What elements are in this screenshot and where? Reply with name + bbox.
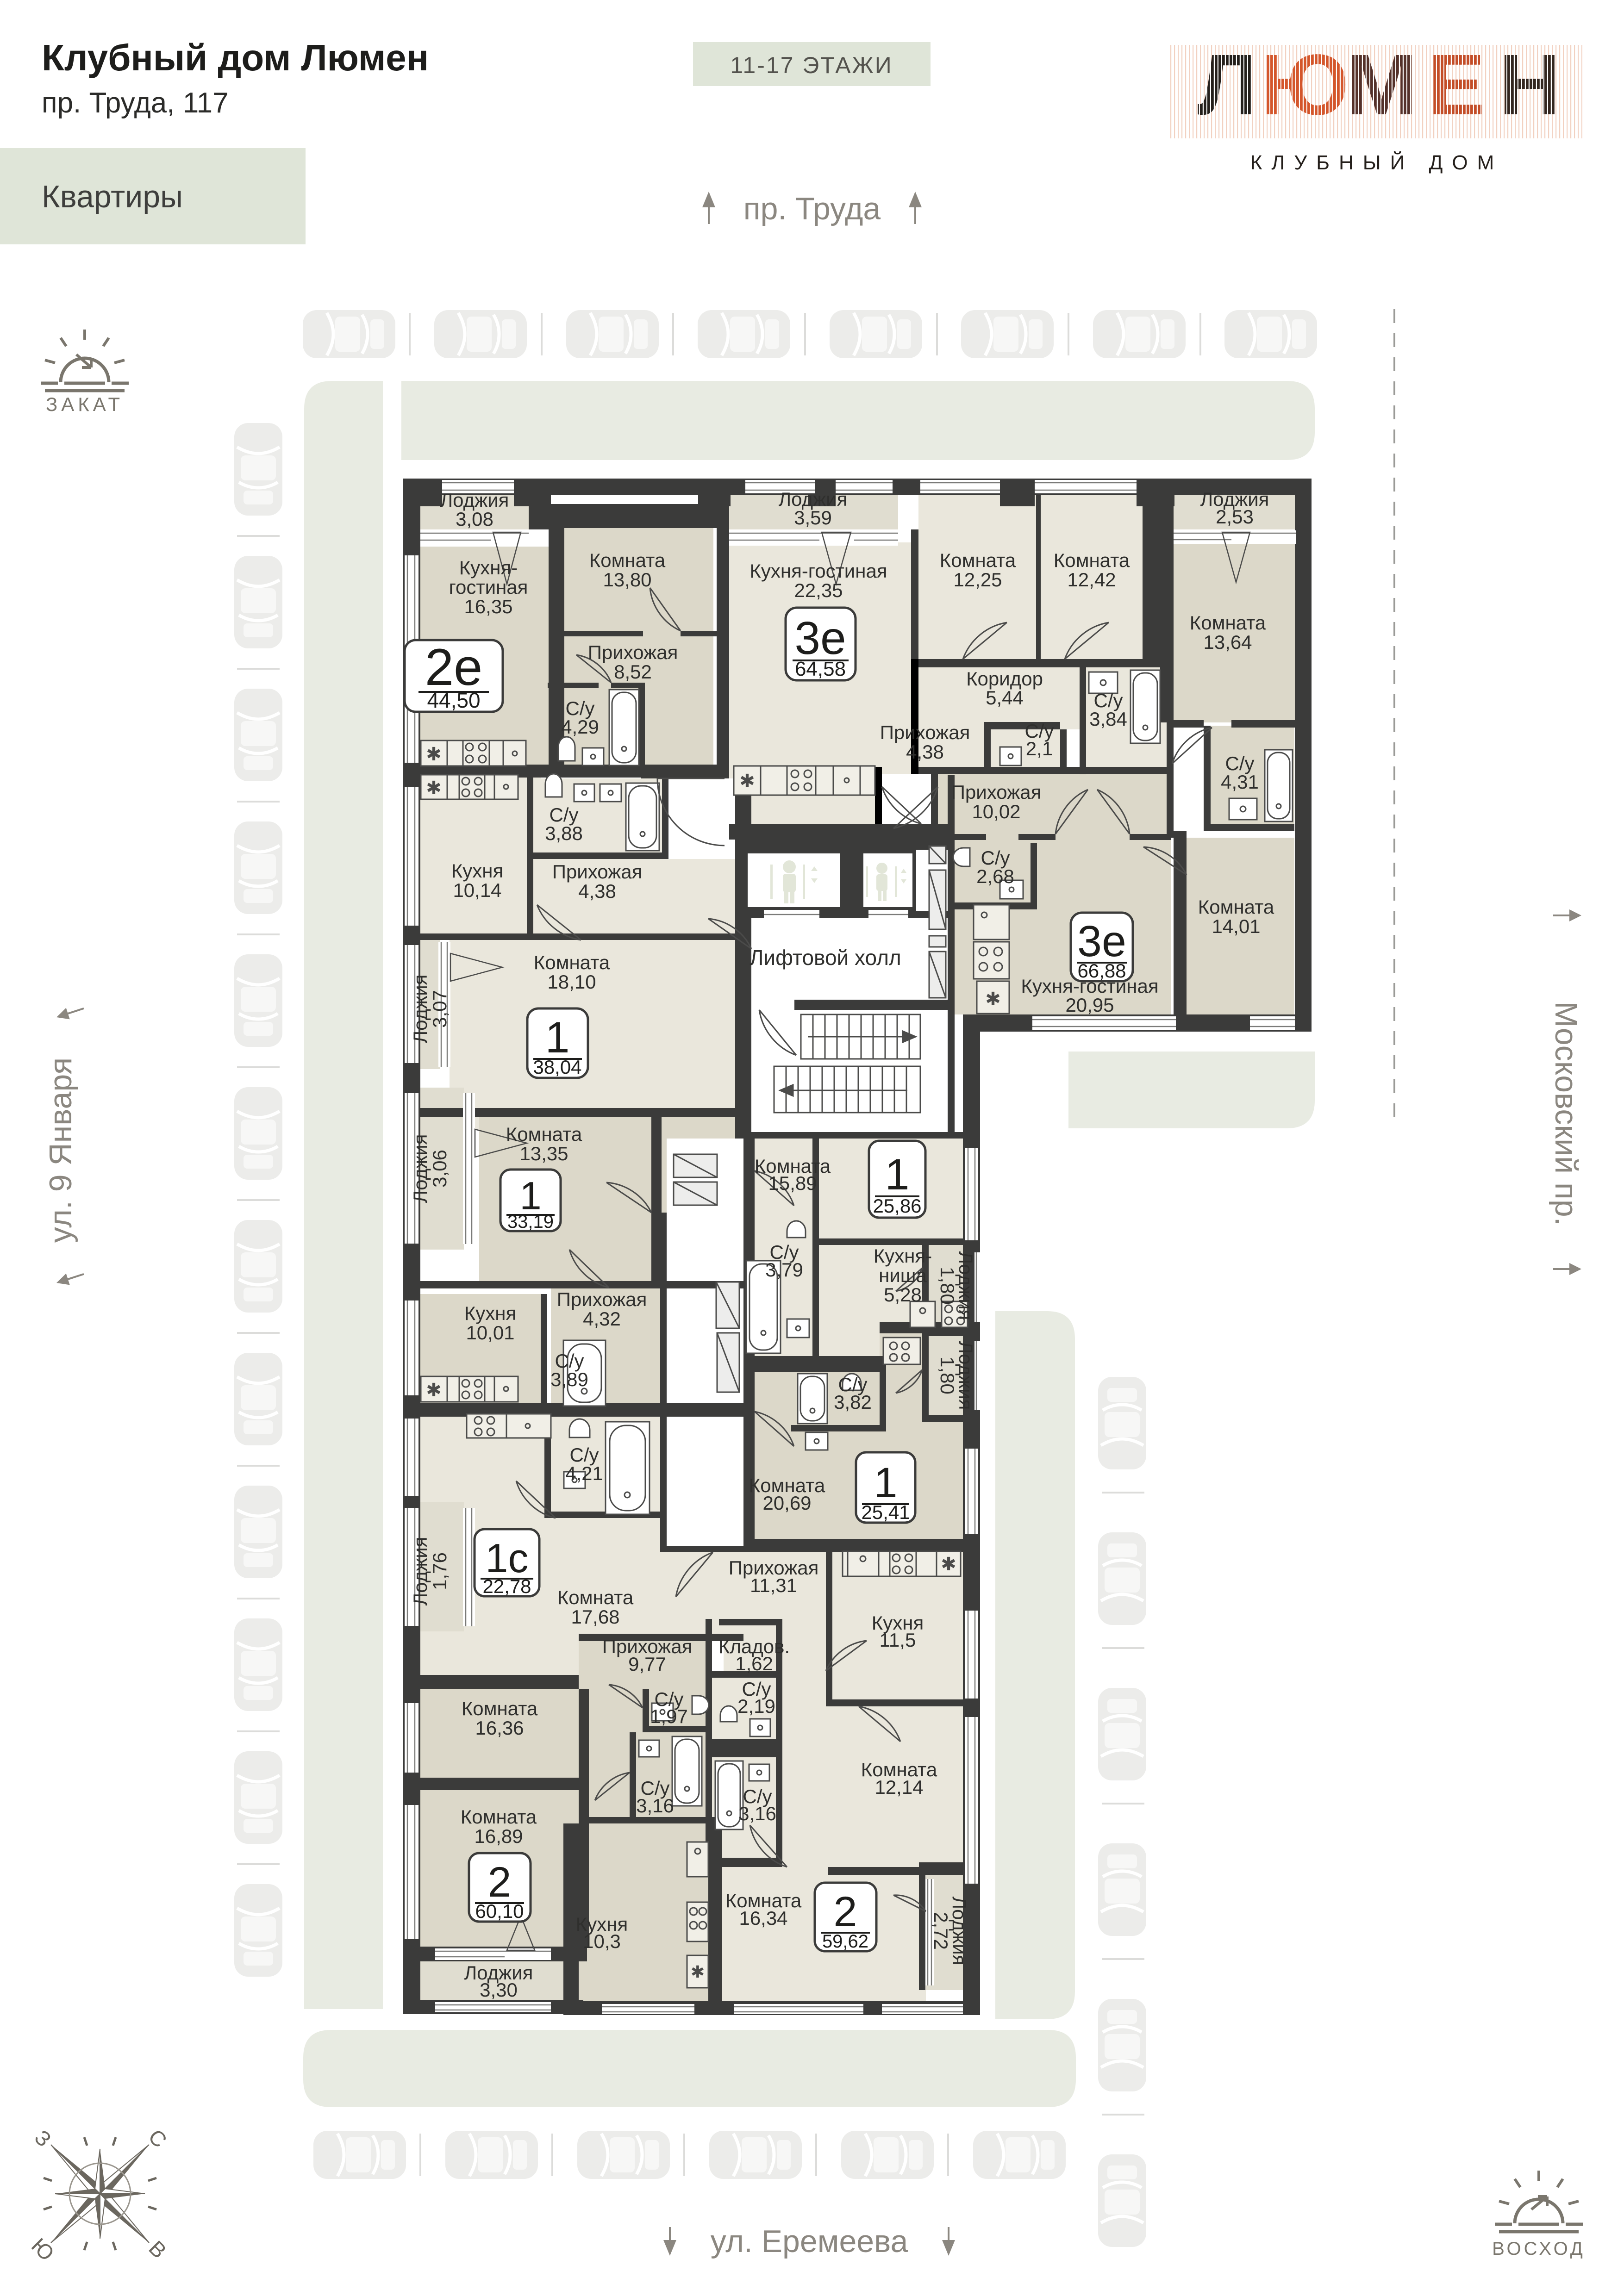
svg-text:2: 2	[833, 1888, 857, 1935]
svg-text:1: 1	[545, 1013, 570, 1062]
svg-text:59,62: 59,62	[822, 1931, 868, 1952]
svg-text:25,86: 25,86	[873, 1195, 921, 1217]
svg-text:4,29: 4,29	[561, 716, 599, 738]
svg-text:пр. Труда: пр. Труда	[743, 191, 881, 226]
svg-text:5,28: 5,28	[884, 1284, 922, 1306]
svg-text:Кухня: Кухня	[451, 860, 503, 882]
svg-text:Комната: Комната	[461, 1806, 537, 1828]
svg-text:2,68: 2,68	[976, 865, 1014, 887]
svg-text:Прихожая: Прихожая	[880, 722, 970, 743]
svg-text:Комната: Комната	[1190, 612, 1266, 634]
svg-text:Комната: Комната	[506, 1123, 582, 1145]
svg-text:Московский пр.: Московский пр.	[1549, 1001, 1584, 1226]
svg-text:12,14: 12,14	[874, 1776, 923, 1798]
svg-text:✱: ✱	[691, 1962, 705, 1981]
svg-text:Комната: Комната	[940, 549, 1016, 571]
svg-text:15,89: 15,89	[768, 1172, 817, 1194]
svg-text:Лоджия: Лоджия	[409, 1537, 431, 1606]
svg-text:Прихожая: Прихожая	[552, 861, 643, 883]
svg-text:✱: ✱	[985, 989, 1001, 1009]
svg-text:11,31: 11,31	[750, 1574, 797, 1596]
svg-text:3,07: 3,07	[429, 990, 450, 1028]
svg-text:4,38: 4,38	[578, 880, 616, 902]
svg-text:12,25: 12,25	[953, 569, 1002, 591]
svg-text:Ю: Ю	[1260, 37, 1349, 133]
svg-text:13,35: 13,35	[519, 1143, 568, 1164]
svg-text:11,5: 11,5	[880, 1629, 916, 1651]
svg-text:64,58: 64,58	[795, 658, 846, 680]
svg-text:3,79: 3,79	[765, 1259, 803, 1281]
svg-text:3,82: 3,82	[834, 1391, 872, 1413]
svg-text:16,89: 16,89	[474, 1825, 523, 1847]
svg-text:КЛУБНЫЙ ДОМ: КЛУБНЫЙ ДОМ	[1250, 150, 1504, 174]
svg-text:22,35: 22,35	[794, 579, 843, 601]
svg-text:4,31: 4,31	[1221, 771, 1259, 793]
svg-text:✱: ✱	[426, 1380, 442, 1400]
svg-text:2е: 2е	[425, 638, 483, 696]
svg-text:Кухня-гостиная: Кухня-гостиная	[1021, 975, 1158, 997]
svg-text:ул. Еремеева: ул. Еремеева	[711, 2224, 908, 2259]
svg-text:ВОСХОД: ВОСХОД	[1492, 2239, 1586, 2259]
svg-text:✱: ✱	[426, 744, 442, 765]
svg-text:10,01: 10,01	[466, 1322, 514, 1344]
svg-text:Комната: Комната	[1198, 896, 1274, 918]
svg-text:3,06: 3,06	[429, 1150, 450, 1188]
svg-text:1,62: 1,62	[735, 1653, 773, 1674]
svg-text:10,02: 10,02	[972, 801, 1020, 822]
svg-text:Комната: Комната	[557, 1587, 634, 1608]
svg-text:10,3: 10,3	[583, 1930, 621, 1952]
svg-text:гостиная: гостиная	[449, 576, 528, 598]
svg-text:3,59: 3,59	[794, 507, 832, 529]
svg-text:✱: ✱	[426, 778, 442, 798]
svg-text:Лоджия: Лоджия	[409, 975, 431, 1044]
svg-text:25,41: 25,41	[861, 1501, 910, 1523]
svg-text:М: М	[1346, 37, 1418, 133]
svg-text:10,14: 10,14	[453, 879, 501, 901]
svg-text:9,77: 9,77	[628, 1653, 666, 1675]
svg-text:8,52: 8,52	[614, 661, 652, 683]
svg-text:16,35: 16,35	[464, 596, 512, 617]
svg-text:13,64: 13,64	[1203, 631, 1252, 653]
svg-text:3е: 3е	[1077, 917, 1126, 966]
svg-text:ниша: ниша	[879, 1264, 927, 1286]
svg-text:3,84: 3,84	[1089, 708, 1127, 730]
svg-text:Прихожая: Прихожая	[557, 1288, 647, 1310]
svg-text:33,19: 33,19	[507, 1212, 554, 1232]
svg-text:Прихожая: Прихожая	[588, 641, 678, 663]
svg-text:22,78: 22,78	[482, 1575, 531, 1597]
svg-text:Комната: Комната	[534, 952, 610, 973]
svg-text:3,30: 3,30	[480, 1979, 518, 2001]
svg-text:3,08: 3,08	[456, 508, 493, 530]
svg-text:1,76: 1,76	[429, 1552, 450, 1590]
svg-text:60,10: 60,10	[475, 1900, 524, 1922]
svg-text:2,19: 2,19	[737, 1695, 775, 1717]
svg-text:5,44: 5,44	[986, 687, 1024, 709]
svg-text:Е: Е	[1428, 37, 1485, 133]
svg-text:1,80: 1,80	[937, 1356, 958, 1394]
svg-text:14,01: 14,01	[1212, 915, 1260, 937]
svg-text:18,10: 18,10	[547, 971, 596, 993]
svg-text:1с: 1с	[486, 1535, 529, 1581]
svg-text:3,89: 3,89	[550, 1369, 588, 1390]
svg-text:13,80: 13,80	[603, 569, 651, 591]
svg-text:3,16: 3,16	[636, 1795, 674, 1817]
svg-text:3,88: 3,88	[545, 822, 583, 844]
svg-text:1,97: 1,97	[650, 1705, 688, 1727]
svg-text:4,32: 4,32	[583, 1308, 621, 1330]
svg-text:Клубный дом Люмен: Клубный дом Люмен	[42, 37, 429, 78]
svg-text:17,68: 17,68	[571, 1606, 619, 1628]
svg-text:✱: ✱	[739, 771, 755, 791]
svg-text:12,42: 12,42	[1067, 569, 1116, 591]
svg-text:Коридор: Коридор	[966, 668, 1043, 690]
svg-text:Лоджия: Лоджия	[440, 489, 509, 511]
svg-text:2,1: 2,1	[1026, 738, 1053, 759]
svg-text:20,95: 20,95	[1065, 994, 1114, 1016]
svg-text:Кухня: Кухня	[464, 1302, 516, 1324]
svg-text:1: 1	[874, 1459, 897, 1506]
svg-text:1: 1	[885, 1150, 910, 1199]
svg-text:Л: Л	[1198, 37, 1258, 133]
svg-text:16,36: 16,36	[475, 1717, 524, 1739]
svg-text:Лоджия: Лоджия	[409, 1134, 431, 1203]
svg-text:Кухня-: Кухня-	[459, 557, 518, 579]
svg-text:Прихожая: Прихожая	[951, 781, 1042, 803]
svg-text:Кухня-: Кухня-	[874, 1245, 932, 1267]
svg-text:20,69: 20,69	[762, 1492, 811, 1514]
svg-text:Кухня-гостиная: Кухня-гостиная	[750, 560, 887, 582]
svg-text:16,34: 16,34	[739, 1907, 787, 1929]
svg-text:38,04: 38,04	[533, 1056, 581, 1078]
svg-text:4,38: 4,38	[906, 741, 944, 763]
svg-text:ЗАКАТ: ЗАКАТ	[46, 393, 124, 415]
svg-text:44,50: 44,50	[427, 688, 480, 712]
svg-text:Лифтовой холл: Лифтовой холл	[750, 946, 901, 970]
svg-text:1,80: 1,80	[937, 1267, 958, 1305]
svg-text:3е: 3е	[794, 612, 846, 664]
svg-text:3,16: 3,16	[738, 1803, 776, 1824]
svg-text:2,72: 2,72	[930, 1912, 952, 1950]
svg-text:11-17 ЭТАЖИ: 11-17 ЭТАЖИ	[730, 52, 893, 78]
svg-text:✱: ✱	[941, 1554, 956, 1574]
svg-text:пр. Труда, 117: пр. Труда, 117	[42, 87, 229, 119]
svg-text:Комната: Комната	[1054, 549, 1130, 571]
svg-text:Комната: Комната	[462, 1698, 538, 1719]
svg-text:Н: Н	[1499, 37, 1561, 133]
svg-text:ул. 9 Января: ул. 9 Января	[43, 1058, 78, 1243]
svg-text:2,53: 2,53	[1216, 506, 1254, 528]
svg-text:Комната: Комната	[589, 549, 666, 571]
svg-text:2: 2	[487, 1859, 511, 1906]
svg-text:4,21: 4,21	[565, 1462, 603, 1484]
svg-text:Квартиры: Квартиры	[42, 179, 183, 214]
